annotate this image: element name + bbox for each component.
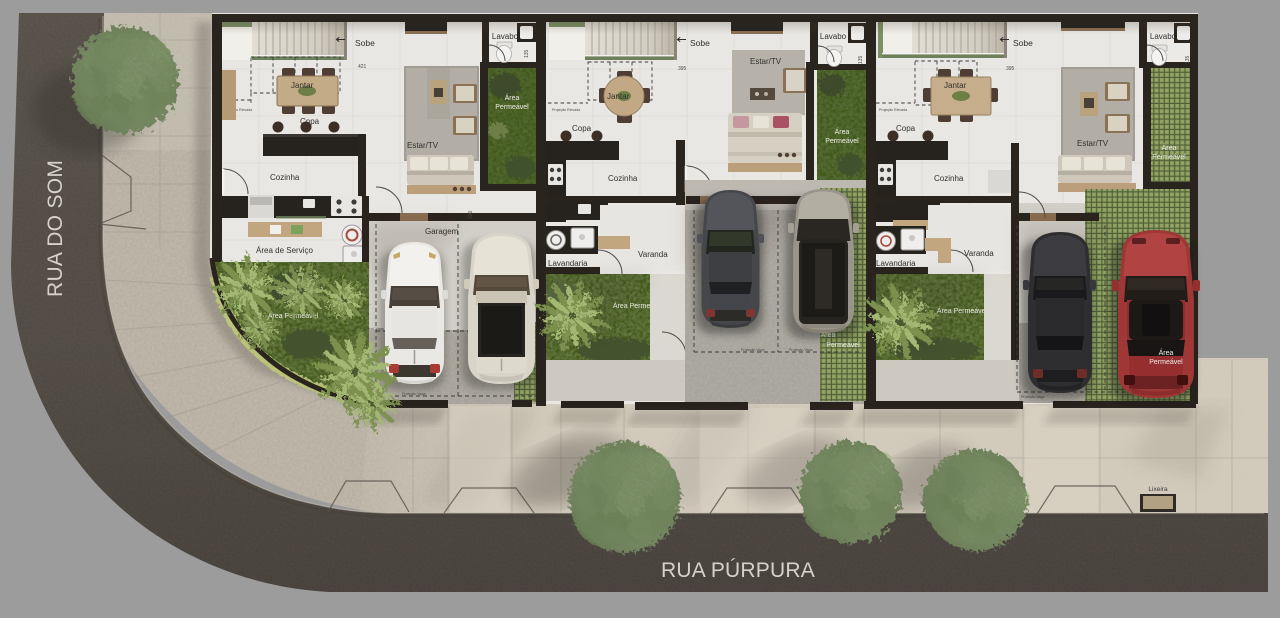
svg-text:Estar/TV: Estar/TV xyxy=(750,57,782,66)
svg-text:Sobe: Sobe xyxy=(355,38,375,48)
svg-text:Permeável: Permeável xyxy=(495,104,529,111)
svg-text:Permeável: Permeável xyxy=(825,138,859,145)
svg-text:Jantar: Jantar xyxy=(944,81,967,90)
svg-text:Jantar: Jantar xyxy=(607,92,630,101)
svg-text:Sobe: Sobe xyxy=(690,38,710,48)
svg-text:Permeável: Permeável xyxy=(1152,154,1186,161)
svg-text:Proteção Vaga: Proteção Vaga xyxy=(402,392,426,396)
svg-text:Copa: Copa xyxy=(572,124,592,133)
svg-text:Copa: Copa xyxy=(896,124,916,133)
svg-text:Estar/TV: Estar/TV xyxy=(1077,139,1109,148)
svg-text:Lixeira: Lixeira xyxy=(1148,486,1168,493)
svg-text:Área: Área xyxy=(835,127,850,136)
svg-text:Permeável: Permeável xyxy=(1149,359,1183,366)
svg-text:Lavandaria: Lavandaria xyxy=(876,259,916,268)
svg-text:Varanda: Varanda xyxy=(964,249,994,258)
svg-text:135: 135 xyxy=(524,49,530,58)
svg-text:Área: Área xyxy=(505,93,520,102)
svg-text:Projeção Elevada: Projeção Elevada xyxy=(552,108,580,112)
svg-text:Sobe: Sobe xyxy=(1013,38,1033,48)
svg-text:Proteção Vaga: Proteção Vaga xyxy=(789,348,813,352)
svg-text:Estar/TV: Estar/TV xyxy=(407,141,439,150)
svg-text:RUA DO SOM: RUA DO SOM xyxy=(44,160,67,297)
svg-text:Cozinha: Cozinha xyxy=(934,174,964,183)
svg-text:Permeável: Permeável xyxy=(826,342,860,349)
svg-text:Cozinha: Cozinha xyxy=(270,173,300,182)
svg-text:421: 421 xyxy=(358,64,367,70)
svg-text:Cozinha: Cozinha xyxy=(608,174,638,183)
svg-text:RUA PÚRPURA: RUA PÚRPURA xyxy=(661,559,815,582)
svg-text:Área: Área xyxy=(1159,348,1174,357)
svg-text:Varanda: Varanda xyxy=(638,250,668,259)
svg-text:Jantar: Jantar xyxy=(291,81,314,90)
svg-text:395: 395 xyxy=(678,66,687,72)
svg-text:Proteção Vaga: Proteção Vaga xyxy=(741,348,765,352)
svg-text:320: 320 xyxy=(468,210,474,219)
svg-text:135: 135 xyxy=(858,55,864,64)
svg-text:Lavandaria: Lavandaria xyxy=(548,259,588,268)
svg-text:Projeção Elevada: Projeção Elevada xyxy=(879,108,907,112)
svg-text:395: 395 xyxy=(1006,66,1015,72)
svg-text:Área: Área xyxy=(1162,143,1177,152)
svg-text:Área de Serviço: Área de Serviço xyxy=(256,246,313,255)
